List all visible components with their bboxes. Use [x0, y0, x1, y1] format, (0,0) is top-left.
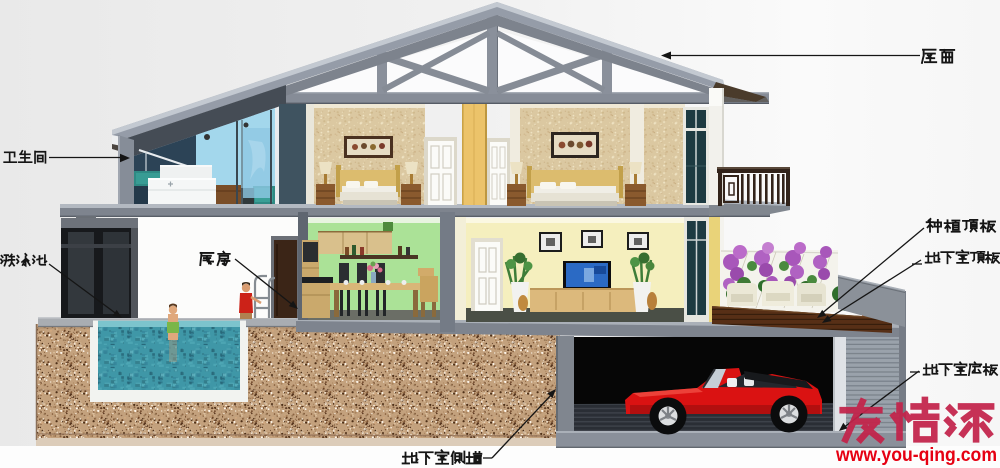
- svg-text:www.you-qing.com: www.you-qing.com: [835, 444, 997, 466]
